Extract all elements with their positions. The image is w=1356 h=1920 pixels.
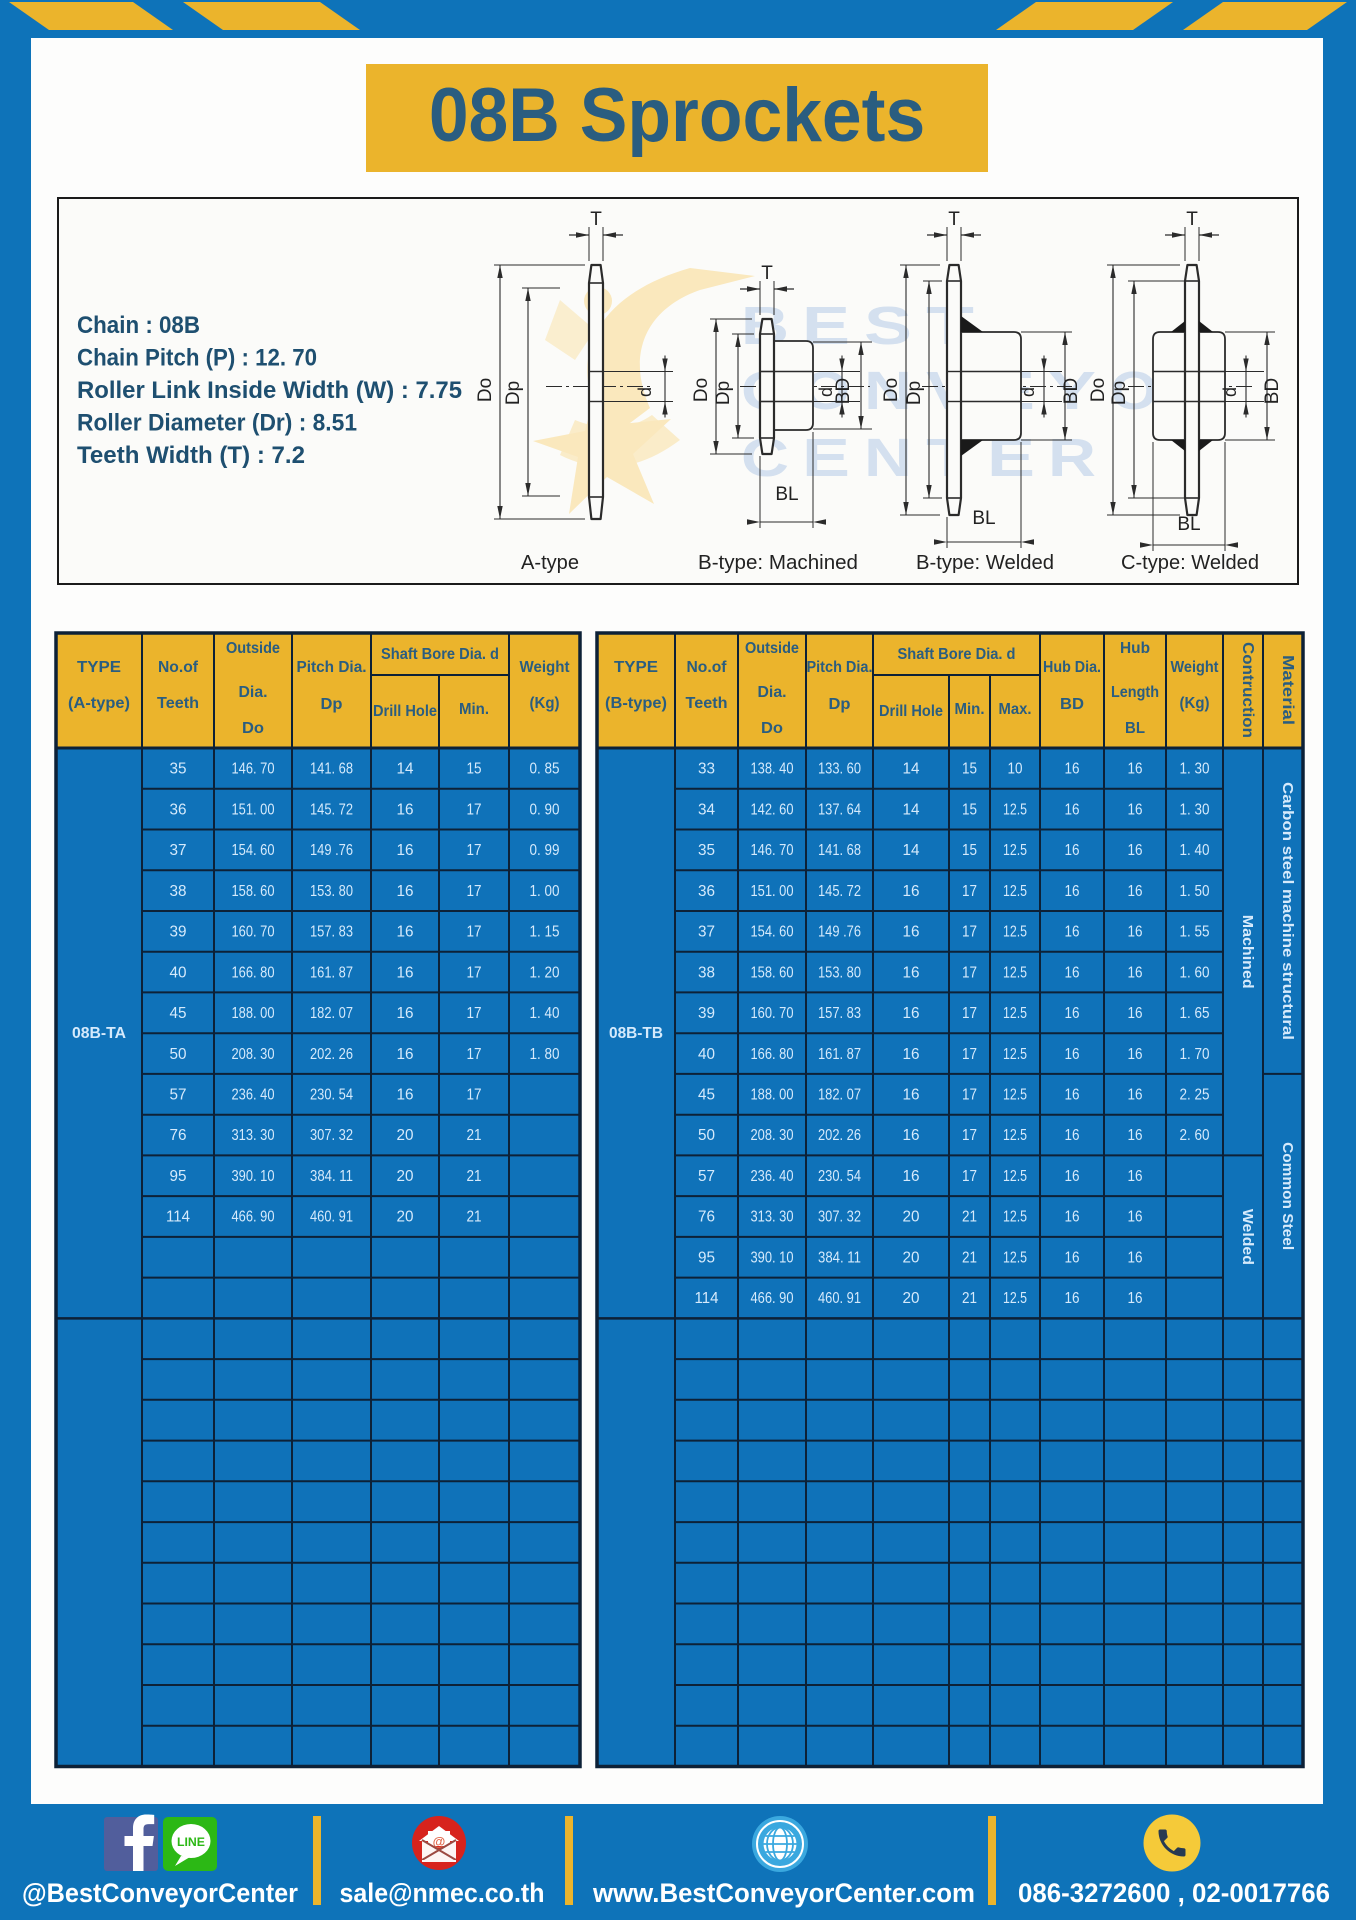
svg-text:Contruction: Contruction (1239, 642, 1256, 738)
svg-text:(A-type): (A-type) (68, 695, 130, 712)
svg-text:08B-TA: 08B-TA (72, 1025, 126, 1042)
svg-text:460. 91: 460. 91 (818, 1290, 861, 1307)
svg-text:17: 17 (467, 842, 482, 859)
svg-text:16: 16 (1065, 801, 1080, 818)
svg-text:12.5: 12.5 (1003, 1250, 1027, 1267)
svg-text:15: 15 (962, 761, 977, 778)
svg-text:20: 20 (903, 1250, 920, 1267)
svg-text:17: 17 (962, 1005, 977, 1022)
svg-text:08B-TB: 08B-TB (609, 1025, 663, 1042)
svg-text:38: 38 (170, 883, 187, 900)
svg-text:16: 16 (397, 883, 414, 900)
svg-text:76: 76 (698, 1209, 715, 1226)
svg-text:15: 15 (962, 842, 977, 859)
svg-text:LINE: LINE (177, 1837, 205, 1849)
svg-text:37: 37 (698, 924, 715, 941)
svg-text:313. 30: 313. 30 (232, 1127, 275, 1144)
svg-text:1. 60: 1. 60 (1180, 964, 1210, 981)
svg-text:21: 21 (467, 1209, 482, 1226)
svg-text:(Kg): (Kg) (530, 695, 560, 712)
svg-text:0. 85: 0. 85 (530, 761, 560, 778)
svg-text:16: 16 (1128, 1046, 1143, 1063)
svg-text:21: 21 (962, 1250, 977, 1267)
svg-text:1. 40: 1. 40 (530, 1005, 560, 1022)
svg-text:16: 16 (1065, 924, 1080, 941)
svg-text:36: 36 (698, 883, 715, 900)
svg-text:202. 26: 202. 26 (818, 1127, 861, 1144)
svg-text:12.5: 12.5 (1003, 1209, 1027, 1226)
svg-text:384. 11: 384. 11 (818, 1250, 861, 1267)
svg-text:146. 70: 146. 70 (751, 842, 794, 859)
svg-text:313. 30: 313. 30 (751, 1209, 794, 1226)
svg-text:16: 16 (903, 964, 920, 981)
svg-text:1. 00: 1. 00 (530, 883, 560, 900)
svg-text:133. 60: 133. 60 (818, 761, 861, 778)
svg-text:153. 80: 153. 80 (818, 964, 861, 981)
svg-text:Drill Hole: Drill Hole (373, 703, 437, 720)
svg-text:36: 36 (170, 801, 187, 818)
svg-text:149 .76: 149 .76 (310, 842, 353, 859)
svg-text:16: 16 (903, 1168, 920, 1185)
svg-text:Welded: Welded (1239, 1209, 1256, 1265)
svg-text:141. 68: 141. 68 (310, 761, 353, 778)
svg-text:16: 16 (1128, 964, 1143, 981)
svg-text:57: 57 (698, 1168, 715, 1185)
svg-text:17: 17 (962, 1087, 977, 1104)
svg-text:Dp: Dp (321, 696, 343, 713)
svg-text:16: 16 (397, 842, 414, 859)
svg-text:16: 16 (903, 1087, 920, 1104)
svg-text:www.BestConveyorCenter.com: www.BestConveyorCenter.com (592, 1878, 975, 1908)
svg-text:1. 30: 1. 30 (1180, 801, 1210, 818)
svg-text:20: 20 (903, 1290, 920, 1307)
svg-text:10: 10 (1008, 761, 1023, 778)
svg-text:12.5: 12.5 (1003, 1127, 1027, 1144)
svg-text:17: 17 (467, 801, 482, 818)
svg-text:35: 35 (170, 761, 187, 778)
svg-text:166. 80: 166. 80 (232, 964, 275, 981)
svg-text:17: 17 (467, 964, 482, 981)
svg-text:2. 25: 2. 25 (1180, 1087, 1210, 1104)
svg-text:17: 17 (467, 1046, 482, 1063)
svg-text:466. 90: 466. 90 (232, 1209, 275, 1226)
svg-text:14: 14 (397, 761, 414, 778)
svg-text:17: 17 (467, 1087, 482, 1104)
svg-text:2. 60: 2. 60 (1180, 1127, 1210, 1144)
svg-text:16: 16 (397, 801, 414, 818)
svg-text:38: 38 (698, 964, 715, 981)
svg-text:Common Steel: Common Steel (1279, 1142, 1295, 1250)
svg-text:16: 16 (1128, 1005, 1143, 1022)
svg-text:(Kg): (Kg) (1180, 695, 1210, 712)
svg-text:188. 00: 188. 00 (751, 1087, 794, 1104)
svg-text:145. 72: 145. 72 (818, 883, 861, 900)
svg-text:BD: BD (1060, 696, 1084, 713)
svg-text:142. 60: 142. 60 (751, 801, 794, 818)
svg-text:141. 68: 141. 68 (818, 842, 861, 859)
svg-text:1. 15: 1. 15 (530, 924, 560, 941)
svg-text:14: 14 (903, 842, 920, 859)
svg-text:16: 16 (1128, 1127, 1143, 1144)
svg-text:95: 95 (170, 1168, 187, 1185)
svg-text:16: 16 (1128, 1209, 1143, 1226)
svg-text:161. 87: 161. 87 (818, 1046, 861, 1063)
svg-text:307. 32: 307. 32 (818, 1209, 861, 1226)
svg-text:Outside: Outside (745, 640, 799, 657)
svg-text:sale@nmec.co.th: sale@nmec.co.th (340, 1878, 545, 1908)
svg-text:Drill Hole: Drill Hole (879, 703, 943, 720)
svg-text:16: 16 (1128, 924, 1143, 941)
svg-text:16: 16 (1065, 1087, 1080, 1104)
svg-text:16: 16 (1065, 1168, 1080, 1185)
svg-text:16: 16 (1065, 1290, 1080, 1307)
svg-text:34: 34 (698, 801, 715, 818)
svg-text:Shaft Bore Dia. d: Shaft Bore Dia. d (381, 646, 499, 663)
svg-text:45: 45 (698, 1087, 715, 1104)
svg-text:16: 16 (1128, 801, 1143, 818)
svg-text:39: 39 (698, 1005, 715, 1022)
svg-text:466. 90: 466. 90 (751, 1290, 794, 1307)
svg-text:1. 70: 1. 70 (1180, 1046, 1210, 1063)
svg-text:17: 17 (962, 964, 977, 981)
svg-text:15: 15 (962, 801, 977, 818)
svg-text:95: 95 (698, 1250, 715, 1267)
svg-text:Dp: Dp (829, 696, 851, 713)
svg-text:16: 16 (1065, 761, 1080, 778)
svg-text:(B-type): (B-type) (605, 695, 667, 712)
svg-text:12.5: 12.5 (1003, 801, 1027, 818)
svg-text:33: 33 (698, 761, 715, 778)
svg-text:Pitch Dia.: Pitch Dia. (807, 659, 873, 676)
svg-text:BL: BL (1125, 720, 1145, 737)
svg-text:Weight: Weight (1171, 659, 1220, 676)
svg-text:16: 16 (1128, 1168, 1143, 1185)
svg-text:161. 87: 161. 87 (310, 964, 353, 981)
svg-text:153. 80: 153. 80 (310, 883, 353, 900)
svg-text:16: 16 (1065, 1005, 1080, 1022)
svg-text:17: 17 (467, 1005, 482, 1022)
svg-text:149 .76: 149 .76 (818, 924, 861, 941)
svg-text:12.5: 12.5 (1003, 842, 1027, 859)
svg-text:21: 21 (962, 1209, 977, 1226)
svg-text:1. 30: 1. 30 (1180, 761, 1210, 778)
svg-text:384. 11: 384. 11 (310, 1168, 353, 1185)
svg-text:17: 17 (962, 1127, 977, 1144)
svg-text:208. 30: 208. 30 (751, 1127, 794, 1144)
svg-text:1. 40: 1. 40 (1180, 842, 1210, 859)
svg-text:230. 54: 230. 54 (818, 1168, 861, 1185)
svg-text:151. 00: 151. 00 (751, 883, 794, 900)
svg-text:16: 16 (903, 883, 920, 900)
svg-text:20: 20 (397, 1209, 414, 1226)
svg-text:16: 16 (1128, 1250, 1143, 1267)
svg-text:12.5: 12.5 (1003, 1005, 1027, 1022)
svg-text:158. 60: 158. 60 (232, 883, 275, 900)
svg-text:Do: Do (242, 720, 264, 737)
svg-text:Teeth: Teeth (157, 695, 199, 712)
svg-text:17: 17 (962, 883, 977, 900)
svg-text:16: 16 (397, 964, 414, 981)
svg-text:21: 21 (962, 1290, 977, 1307)
svg-text:17: 17 (962, 1168, 977, 1185)
svg-text:160. 70: 160. 70 (232, 924, 275, 941)
svg-text:166. 80: 166. 80 (751, 1046, 794, 1063)
svg-text:40: 40 (170, 964, 187, 981)
svg-text:21: 21 (467, 1127, 482, 1144)
svg-text:Hub: Hub (1120, 640, 1150, 657)
svg-text:Max.: Max. (999, 701, 1032, 718)
svg-text:Shaft Bore Dia. d: Shaft Bore Dia. d (898, 646, 1016, 663)
svg-text:20: 20 (397, 1127, 414, 1144)
svg-text:50: 50 (698, 1127, 715, 1144)
svg-text:Length: Length (1111, 684, 1159, 701)
svg-text:16: 16 (1065, 1127, 1080, 1144)
svg-text:230. 54: 230. 54 (310, 1087, 353, 1104)
svg-text:1. 55: 1. 55 (1180, 924, 1210, 941)
svg-text:16: 16 (397, 1046, 414, 1063)
svg-text:16: 16 (903, 1046, 920, 1063)
svg-text:236. 40: 236. 40 (751, 1168, 794, 1185)
svg-text:20: 20 (397, 1168, 414, 1185)
svg-text:Weight: Weight (520, 659, 571, 676)
svg-text:160. 70: 160. 70 (751, 1005, 794, 1022)
svg-text:15: 15 (467, 761, 482, 778)
svg-text:086-3272600 , 02-0017766: 086-3272600 , 02-0017766 (1018, 1878, 1330, 1908)
svg-text:14: 14 (903, 801, 920, 818)
svg-text:@BestConveyorCenter: @BestConveyorCenter (22, 1878, 298, 1908)
svg-text:17: 17 (962, 1046, 977, 1063)
svg-text:12.5: 12.5 (1003, 964, 1027, 981)
svg-text:137. 64: 137. 64 (818, 801, 861, 818)
svg-text:202. 26: 202. 26 (310, 1046, 353, 1063)
svg-text:76: 76 (170, 1127, 187, 1144)
svg-text:Do: Do (761, 720, 783, 737)
svg-text:12.5: 12.5 (1003, 1087, 1027, 1104)
svg-text:Dia.: Dia. (758, 684, 787, 701)
svg-text:16: 16 (1128, 761, 1143, 778)
svg-text:17: 17 (467, 883, 482, 900)
svg-text:35: 35 (698, 842, 715, 859)
svg-text:16: 16 (397, 1087, 414, 1104)
svg-text:16: 16 (1065, 1250, 1080, 1267)
svg-text:20: 20 (903, 1209, 920, 1226)
svg-text:17: 17 (467, 924, 482, 941)
svg-text:16: 16 (903, 924, 920, 941)
svg-text:1. 65: 1. 65 (1180, 1005, 1210, 1022)
svg-text:154. 60: 154. 60 (751, 924, 794, 941)
svg-text:12.5: 12.5 (1003, 924, 1027, 941)
svg-text:151. 00: 151. 00 (232, 801, 275, 818)
svg-text:TYPE: TYPE (614, 659, 658, 676)
svg-text:16: 16 (1128, 842, 1143, 859)
svg-text:158. 60: 158. 60 (751, 964, 794, 981)
svg-text:Min.: Min. (955, 701, 985, 718)
svg-text:16: 16 (397, 924, 414, 941)
svg-text:236. 40: 236. 40 (232, 1087, 275, 1104)
svg-text:No.of: No.of (687, 659, 728, 676)
svg-text:57: 57 (170, 1087, 187, 1104)
svg-text:Pitch Dia.: Pitch Dia. (297, 659, 367, 676)
svg-text:138. 40: 138. 40 (751, 761, 794, 778)
svg-text:390. 10: 390. 10 (232, 1168, 275, 1185)
svg-text:16: 16 (903, 1005, 920, 1022)
svg-text:17: 17 (962, 924, 977, 941)
svg-text:157. 83: 157. 83 (310, 924, 353, 941)
svg-text:39: 39 (170, 924, 187, 941)
svg-text:40: 40 (698, 1046, 715, 1063)
svg-text:12.5: 12.5 (1003, 1168, 1027, 1185)
svg-text:1. 80: 1. 80 (530, 1046, 560, 1063)
svg-text:0. 99: 0. 99 (530, 842, 560, 859)
svg-text:21: 21 (467, 1168, 482, 1185)
svg-text:Teeth: Teeth (686, 695, 728, 712)
svg-text:182. 07: 182. 07 (818, 1087, 861, 1104)
svg-text:460. 91: 460. 91 (310, 1209, 353, 1226)
svg-text:16: 16 (1065, 1209, 1080, 1226)
svg-text:12.5: 12.5 (1003, 1290, 1027, 1307)
svg-text:No.of: No.of (158, 659, 199, 676)
svg-text:Outside: Outside (226, 640, 280, 657)
svg-text:16: 16 (1065, 883, 1080, 900)
svg-text:16: 16 (903, 1127, 920, 1144)
svg-text:TYPE: TYPE (77, 659, 121, 676)
svg-text:Machined: Machined (1239, 915, 1256, 989)
svg-text:12.5: 12.5 (1003, 1046, 1027, 1063)
svg-text:154. 60: 154. 60 (232, 842, 275, 859)
svg-text:50: 50 (170, 1046, 187, 1063)
svg-text:Min.: Min. (459, 701, 489, 718)
svg-text:1. 20: 1. 20 (530, 964, 560, 981)
svg-text:37: 37 (170, 842, 187, 859)
svg-text:45: 45 (170, 1005, 187, 1022)
svg-text:Material: Material (1279, 655, 1296, 725)
svg-text:114: 114 (695, 1290, 719, 1307)
svg-text:208. 30: 208. 30 (232, 1046, 275, 1063)
svg-text:157. 83: 157. 83 (818, 1005, 861, 1022)
svg-text:16: 16 (1128, 1290, 1143, 1307)
svg-text:16: 16 (397, 1005, 414, 1022)
svg-text:188. 00: 188. 00 (232, 1005, 275, 1022)
svg-text:16: 16 (1128, 883, 1143, 900)
svg-text:182. 07: 182. 07 (310, 1005, 353, 1022)
svg-text:0. 90: 0. 90 (530, 801, 560, 818)
svg-text:Hub Dia.: Hub Dia. (1043, 659, 1101, 676)
svg-text:14: 14 (903, 761, 920, 778)
svg-text:390. 10: 390. 10 (751, 1250, 794, 1267)
svg-text:16: 16 (1065, 964, 1080, 981)
svg-text:1. 50: 1. 50 (1180, 883, 1210, 900)
svg-text:114: 114 (166, 1209, 190, 1226)
svg-text:16: 16 (1065, 842, 1080, 859)
svg-text:146. 70: 146. 70 (232, 761, 275, 778)
svg-text:16: 16 (1128, 1087, 1143, 1104)
svg-text:12.5: 12.5 (1003, 883, 1027, 900)
svg-text:16: 16 (1065, 1046, 1080, 1063)
svg-text:Carbon steel machine structur: Carbon steel machine structural (1279, 782, 1295, 1040)
svg-text:Dia.: Dia. (239, 684, 268, 701)
svg-text:307. 32: 307. 32 (310, 1127, 353, 1144)
svg-text:145. 72: 145. 72 (310, 801, 353, 818)
